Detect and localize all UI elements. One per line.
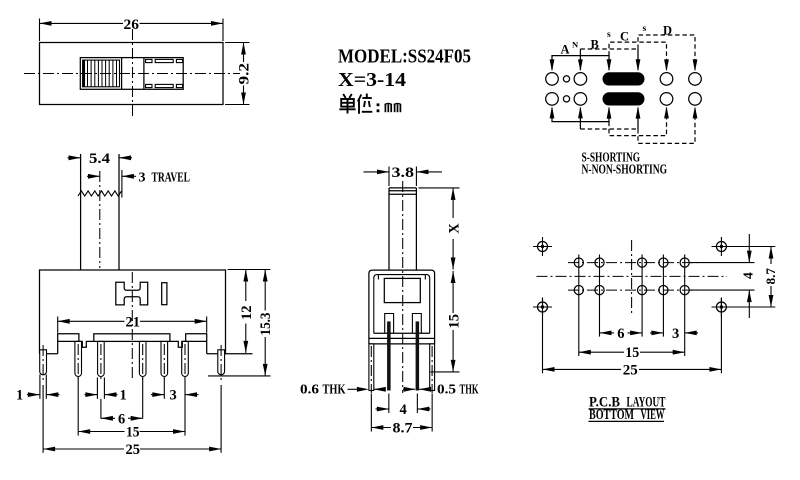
- svg-text:3.8: 3.8: [392, 165, 415, 181]
- svg-text:C: C: [620, 30, 629, 44]
- svg-text:0.5: 0.5: [437, 382, 456, 397]
- svg-text:D: D: [663, 24, 672, 38]
- svg-text:15.3: 15.3: [258, 313, 274, 336]
- svg-text:A: A: [561, 43, 570, 57]
- svg-text:B: B: [591, 37, 599, 51]
- svg-text:4: 4: [741, 272, 756, 279]
- svg-text:6: 6: [617, 326, 624, 342]
- svg-text:25: 25: [623, 362, 638, 378]
- svg-text:3: 3: [139, 170, 146, 185]
- svg-text:s: s: [643, 24, 647, 34]
- svg-text:0.6: 0.6: [300, 382, 319, 397]
- svg-text:VIEW: VIEW: [641, 407, 665, 423]
- svg-text:N-NON-SHORTING: N-NON-SHORTING: [582, 161, 668, 176]
- svg-text:8.7: 8.7: [764, 267, 778, 284]
- svg-text:TRAVEL: TRAVEL: [152, 170, 191, 185]
- svg-text:5.4: 5.4: [89, 151, 110, 167]
- svg-text:X: X: [446, 223, 462, 234]
- svg-text:THK: THK: [460, 382, 479, 397]
- svg-text:15: 15: [446, 314, 462, 329]
- svg-text:9.2: 9.2: [237, 63, 253, 85]
- svg-text:4: 4: [400, 402, 407, 418]
- svg-text:1: 1: [120, 388, 127, 404]
- svg-text:BOTTOM: BOTTOM: [589, 407, 634, 423]
- svg-text:3: 3: [170, 388, 177, 404]
- svg-text:8.7: 8.7: [393, 420, 413, 436]
- svg-text:25: 25: [126, 442, 141, 458]
- svg-text:26: 26: [124, 17, 140, 33]
- svg-text:N: N: [572, 40, 579, 50]
- svg-text:X=3-14: X=3-14: [338, 70, 406, 91]
- svg-text:3: 3: [672, 326, 679, 342]
- svg-text:21: 21: [126, 314, 141, 330]
- svg-text:s: s: [607, 30, 611, 40]
- svg-text:THK: THK: [323, 382, 346, 397]
- svg-text:6: 6: [118, 411, 125, 427]
- svg-text:1: 1: [16, 388, 23, 404]
- svg-text:12: 12: [239, 306, 255, 321]
- svg-text:15: 15: [625, 345, 639, 361]
- svg-text:MODEL:SS24F05: MODEL:SS24F05: [338, 46, 471, 67]
- svg-text:15: 15: [126, 425, 140, 441]
